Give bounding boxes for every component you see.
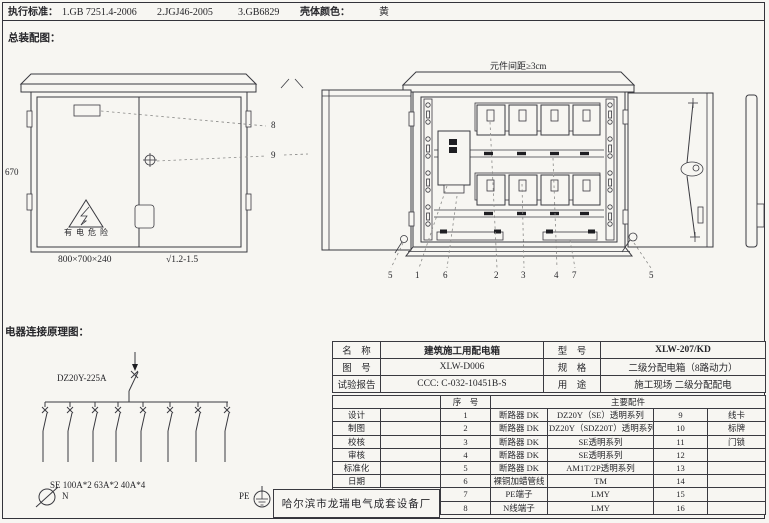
main-breaker	[438, 131, 470, 193]
info-key: 规 格	[544, 359, 601, 376]
callout-bottom: 7	[572, 271, 577, 280]
row-no: 14	[654, 475, 708, 488]
part-name: 标牌	[708, 422, 766, 435]
standard-3: 3.GB6829	[238, 8, 279, 18]
standards-label: 执行标准：	[8, 8, 58, 18]
nameplate	[74, 105, 100, 116]
part-name	[708, 475, 766, 488]
part-name	[708, 448, 766, 461]
shell-color-value: 黄	[379, 8, 389, 18]
row-no: 16	[654, 501, 708, 514]
part-spec: TM	[548, 475, 654, 488]
part-spec: DZ20Y（SE）透明系列	[548, 409, 654, 422]
height-dimension: 670	[5, 168, 19, 177]
spacing-note: 元件间距≥3cm	[490, 62, 546, 71]
info-key: 图 号	[333, 359, 381, 376]
part-name: 断路器 DK	[491, 409, 548, 422]
row-no: 2	[441, 422, 491, 435]
row-no: 3	[441, 435, 491, 448]
part-spec: LMY	[548, 501, 654, 514]
callout-bottom: 3	[521, 271, 526, 280]
parts-header: 主要配件	[491, 396, 766, 409]
row-no: 5	[441, 461, 491, 474]
part-name	[708, 488, 766, 501]
callout-9: 9	[271, 151, 276, 160]
product-name: 建筑施工用配电箱	[381, 342, 544, 359]
callout-bottom: 6	[443, 271, 448, 280]
signature-cell	[381, 475, 441, 488]
sign-label: 校核	[333, 435, 381, 448]
assembly-title: 总装配图：	[8, 34, 61, 45]
info-key: 试验报告	[333, 376, 381, 393]
main-breaker-label: DZ20Y-225A	[57, 374, 107, 383]
part-name: N线端子	[491, 501, 548, 514]
sign-label: 日期	[333, 475, 381, 488]
info-key: 名 称	[333, 342, 381, 359]
side-panel	[746, 95, 764, 247]
signature-cell	[381, 448, 441, 461]
part-spec: DZ20Y（SDZ20T）透明系列	[548, 422, 654, 435]
blank-cell	[333, 396, 441, 409]
left-door	[322, 90, 414, 253]
callout-bottom: 1	[415, 271, 420, 280]
row-no: 4	[441, 448, 491, 461]
info-key: 型 号	[544, 342, 601, 359]
signature-cell	[381, 409, 441, 422]
pe-earth-symbol	[254, 486, 270, 507]
hazard-warning-text: 有电危险	[64, 229, 112, 237]
model-number: XLW-207/KD	[601, 342, 766, 359]
surface-finish-mark: √1.2-1.5	[166, 256, 198, 266]
row-no: 7	[441, 488, 491, 501]
callout-8: 8	[271, 121, 276, 130]
callout-bottom: 2	[494, 271, 499, 280]
open-view-drawing	[322, 72, 764, 268]
sign-label: 设计	[333, 409, 381, 422]
spec-value: 二级分配电箱（8路动力）	[601, 359, 766, 376]
row-no: 9	[654, 409, 708, 422]
info-table: 名 称 建筑施工用配电箱 型 号 XLW-207/KD 图 号 XLW-D006…	[332, 341, 766, 393]
part-spec: LMY	[548, 488, 654, 501]
part-spec: SE透明系列	[548, 435, 654, 448]
size-dimension: 800×700×240	[58, 256, 111, 266]
row-no: 10	[654, 422, 708, 435]
branch-breakers-top	[475, 103, 600, 135]
info-key: 用 途	[544, 376, 601, 393]
part-name	[708, 501, 766, 514]
signature-cell	[381, 422, 441, 435]
row-no: 11	[654, 435, 708, 448]
callout-bottom: 4	[554, 271, 559, 280]
part-name: PE端子	[491, 488, 548, 501]
part-name: 断路器 DK	[491, 422, 548, 435]
door-stay-handle	[681, 162, 703, 176]
part-name: 断路器 DK	[491, 461, 548, 474]
pe-label: PE	[239, 492, 250, 501]
usage-value: 施工现场 二级分配配电	[601, 376, 766, 393]
part-name: 断路器 DK	[491, 435, 548, 448]
part-spec: AM1T/2P透明系列	[548, 461, 654, 474]
callout-bottom: 5	[388, 271, 393, 280]
sign-label: 审核	[333, 448, 381, 461]
row-no: 15	[654, 488, 708, 501]
row-no: 13	[654, 461, 708, 474]
manufacturer-name: 哈尔滨市龙瑞电气成套设备厂	[273, 489, 440, 518]
standard-2: 2.JGJ46-2005	[157, 8, 213, 18]
part-name: 断路器 DK	[491, 448, 548, 461]
part-name	[708, 461, 766, 474]
part-name: 裸铜加蜡管线	[491, 475, 548, 488]
branch-spec-label: SE 100A*2 63A*2 40A*4	[50, 481, 145, 490]
shell-color-label: 壳体颜色：	[300, 8, 350, 18]
part-spec: SE透明系列	[548, 448, 654, 461]
standard-1: 1.GB 7251.4-2006	[62, 8, 137, 18]
sign-label: 标准化	[333, 461, 381, 474]
drawing-sheet: 执行标准： 1.GB 7251.4-2006 2.JGJ46-2005 3.GB…	[0, 0, 769, 523]
right-door	[622, 93, 713, 252]
test-report-number: CCC: C-032-10451B-S	[381, 376, 544, 393]
front-view-drawing	[21, 74, 308, 252]
serial-header: 序 号	[441, 396, 491, 409]
neutral-bar-symbol	[36, 487, 58, 507]
part-name: 门锁	[708, 435, 766, 448]
part-name: 线卡	[708, 409, 766, 422]
row-no: 12	[654, 448, 708, 461]
sign-label: 制图	[333, 422, 381, 435]
drawing-number: XLW-D006	[381, 359, 544, 376]
neutral-label: N	[62, 492, 69, 501]
row-no: 1	[441, 409, 491, 422]
signature-cell	[381, 461, 441, 474]
signature-cell	[381, 435, 441, 448]
callout-bottom: 5	[649, 271, 654, 280]
schematic-title: 电器连接原理图：	[5, 328, 89, 339]
branch-circuits	[42, 402, 230, 462]
row-no: 8	[441, 501, 491, 514]
row-no: 6	[441, 475, 491, 488]
door-lock-box	[135, 205, 154, 228]
